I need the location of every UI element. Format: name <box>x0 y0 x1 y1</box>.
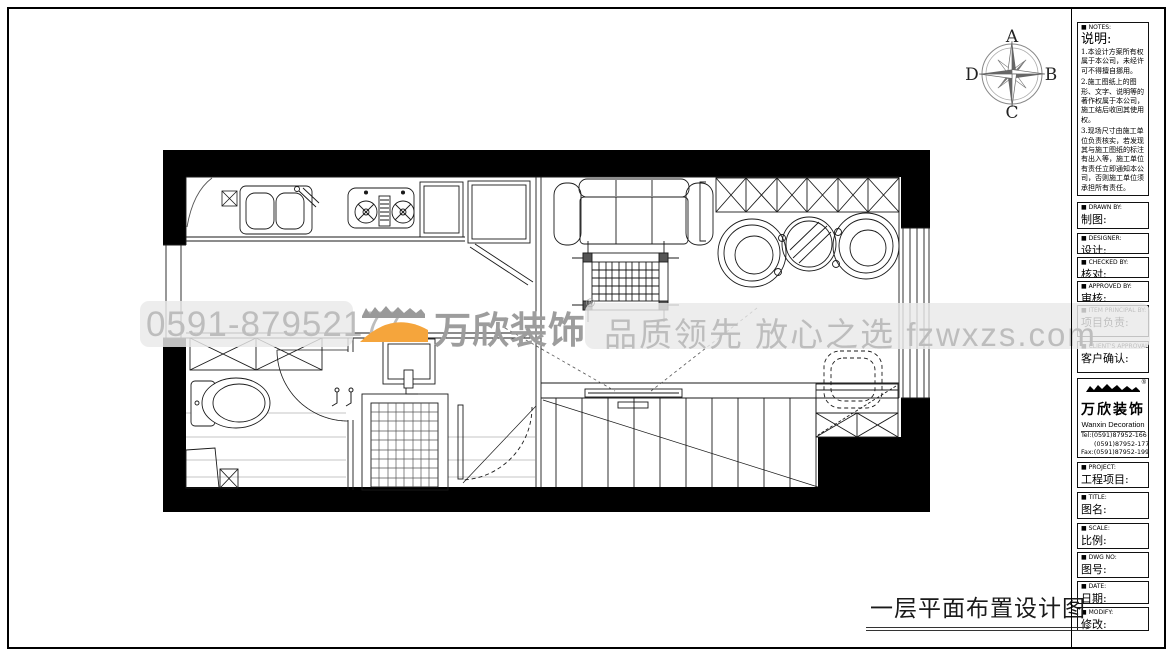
note-item: 1.本设计方案所有权属于本公司，未经许可不得擅自挪用。 <box>1081 48 1145 76</box>
watermark-slogan: 品质领先 放心之选 fzwxzs.com <box>604 308 1097 356</box>
company-box: ® 万欣装饰 Wanxin Decoration Tel:(0591)87952… <box>1077 378 1149 458</box>
round-table <box>782 217 836 271</box>
field-scale: ■ SCALE: 比例: <box>1077 523 1149 549</box>
note-item: 3.现场尺寸由施工单位负责核实，若发现其与施工图纸的标注有出入等，施工单位有责任… <box>1081 127 1145 193</box>
compass-label-south: C <box>1005 103 1018 123</box>
registered-mark-icon: ® <box>586 296 595 310</box>
armchair-left <box>718 219 786 287</box>
notes-label-en: ■ NOTES: <box>1081 24 1145 31</box>
wash-basin <box>383 339 435 394</box>
dining-cabinet <box>716 178 899 212</box>
compass-rose <box>979 41 1045 107</box>
counter-appliance <box>420 182 463 237</box>
notes-label-zh: 说明: <box>1081 33 1145 46</box>
landing-rail <box>541 383 899 408</box>
company-fax: Fax:(0591)87952-199 <box>1081 449 1145 458</box>
entry-door <box>187 178 212 227</box>
field-title: ■ TITLE: 图名: <box>1077 492 1149 519</box>
registered-mark-icon: ® <box>1142 380 1146 386</box>
company-name: 万欣装饰 <box>1081 399 1145 419</box>
office-chair <box>824 351 882 408</box>
watermark-brand: 万欣装饰 <box>434 300 586 354</box>
notes-box: ■ NOTES: 说明: 1.本设计方案所有权属于本公司，未经许可不得擅自挪用。… <box>1077 22 1149 196</box>
corner-basin <box>186 448 238 488</box>
watermark-logo-swoosh <box>358 304 432 346</box>
armchair-right <box>833 213 900 279</box>
field-project: ■ PROJECT: 工程项目: <box>1077 462 1149 488</box>
company-logo-brush-icon <box>1085 383 1141 393</box>
sofa <box>554 179 713 245</box>
field-dwg-no: ■ DWG NO: 图号: <box>1077 552 1149 578</box>
company-name-en: Wanxin Decoration <box>1081 420 1145 432</box>
stairs <box>458 398 818 487</box>
drawing-sheet: A B C D 0591-87952177 万欣装饰 ® 品质领先 放心之选 f… <box>0 0 1171 654</box>
toilet <box>191 378 270 428</box>
note-item: 4.本设计方案是依客户要求设计，经客户签字即视为同意认可，不得随意更改。 <box>1081 195 1145 196</box>
compass-label-west: D <box>965 65 979 85</box>
shower-floor <box>362 394 448 490</box>
field-drawn-by: ■ DRAWN BY: 制图: <box>1077 202 1149 229</box>
company-tel2: (0591)87952-177 <box>1081 441 1145 450</box>
note-item: 2.施工图纸上的图形、文字、说明等的著作权属于本公司，施工结后收回其使用权。 <box>1081 78 1145 125</box>
company-tel1: Tel:(0591)87952-166 <box>1081 432 1145 441</box>
desk <box>816 384 898 437</box>
gas-stove <box>348 188 414 228</box>
shower-heads <box>332 388 353 406</box>
field-designer: ■ DESIGNER: 设计: <box>1077 233 1149 254</box>
field-checked-by: ■ CHECKED BY: 核对: <box>1077 257 1149 278</box>
titleblock-divider <box>1071 7 1072 647</box>
compass-label-east: B <box>1045 65 1058 85</box>
kitchen-counter <box>186 237 465 241</box>
kitchen-sink <box>240 186 319 234</box>
bathroom-door <box>277 350 348 421</box>
drawing-title: 一层平面布置设计图 <box>866 589 1090 628</box>
compass-label-north: A <box>1005 27 1019 47</box>
flue-duct <box>222 191 237 206</box>
refrigerator <box>468 181 533 285</box>
field-approved-by: ■ APPROVED BY: 审核: <box>1077 281 1149 302</box>
